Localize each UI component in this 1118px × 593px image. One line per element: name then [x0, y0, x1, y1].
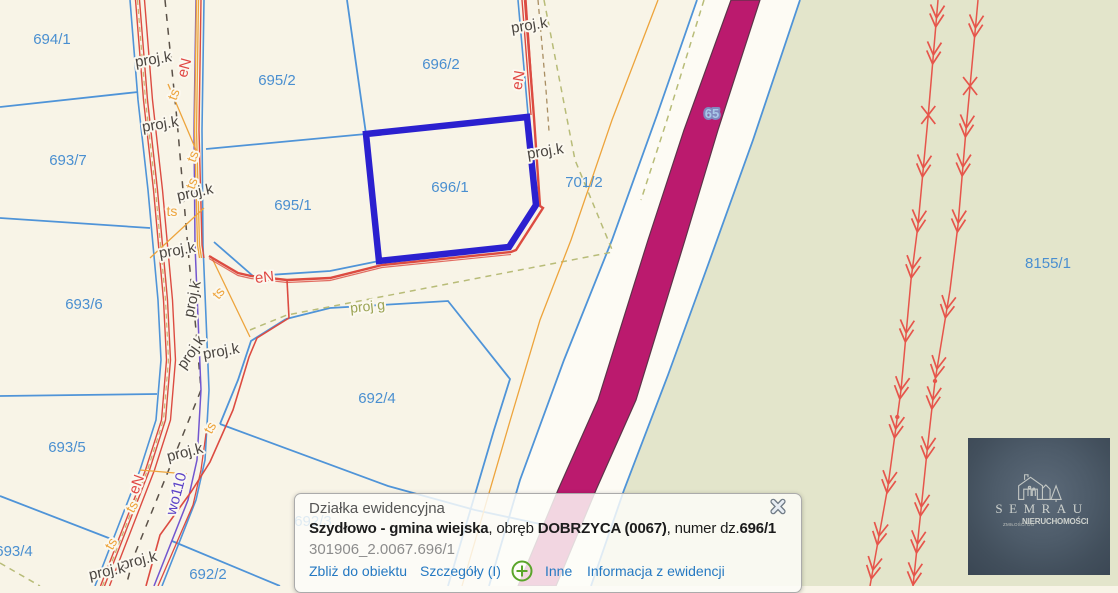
svg-text:8155/1: 8155/1: [1025, 255, 1071, 272]
svg-text:eN: eN: [254, 268, 275, 287]
svg-text:693/5: 693/5: [48, 439, 86, 456]
svg-text:693/6: 693/6: [65, 296, 103, 313]
svg-text:696/2: 696/2: [422, 56, 460, 73]
svg-text:694/1: 694/1: [33, 31, 71, 48]
svg-text:693/4: 693/4: [0, 543, 33, 560]
svg-text:693/7: 693/7: [49, 152, 87, 169]
svg-text:eN: eN: [509, 69, 529, 91]
svg-text:695/2: 695/2: [258, 72, 296, 89]
svg-text:65: 65: [705, 106, 719, 121]
svg-text:701/2: 701/2: [565, 174, 603, 191]
svg-text:695/1: 695/1: [274, 197, 312, 214]
svg-text:692/2: 692/2: [189, 566, 227, 583]
svg-text:696/1: 696/1: [431, 179, 469, 196]
svg-text:692/4: 692/4: [358, 390, 396, 407]
svg-text:ts: ts: [167, 203, 178, 219]
